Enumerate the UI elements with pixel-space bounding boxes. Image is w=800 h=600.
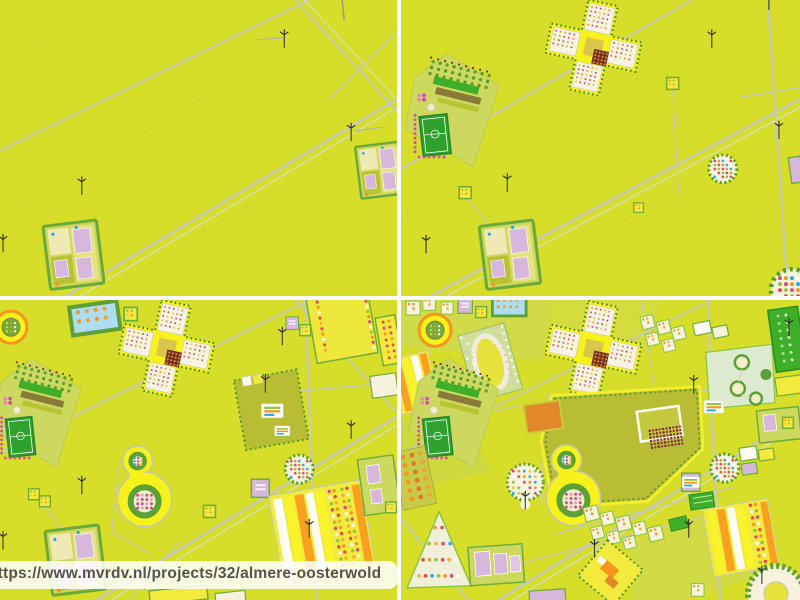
masterplan-phase-2-map [401,0,800,296]
masterplan-phase-2-panel [401,0,800,296]
masterplan-phase-3-map [0,300,397,600]
screenshot-root: https://www.mvrdv.nl/projects/32/almere-… [0,0,800,600]
masterplan-phase-4-panel [401,300,800,600]
source-url-text: https://www.mvrdv.nl/projects/32/almere-… [0,565,381,582]
masterplan-phase-1-panel [0,0,397,296]
masterplan-phase-1-map [0,0,397,296]
masterplan-phase-4-map [401,300,800,600]
masterplan-phase-3-panel [0,300,397,600]
source-url-caption: https://www.mvrdv.nl/projects/32/almere-… [0,561,397,589]
